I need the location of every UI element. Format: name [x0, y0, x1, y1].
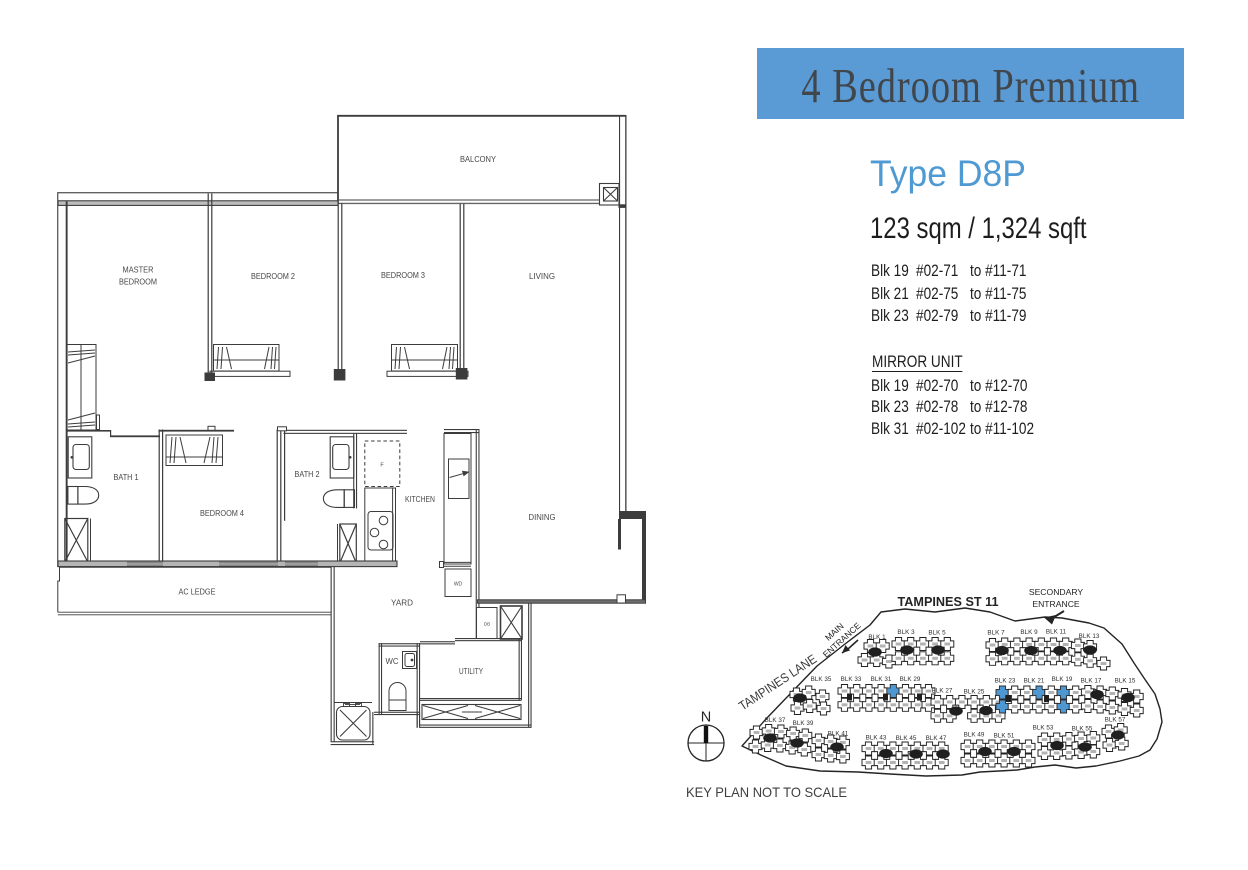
svg-text:AC LEDGE: AC LEDGE: [179, 587, 216, 597]
svg-text:BLK 51: BLK 51: [994, 733, 1015, 740]
svg-text:KEY PLAN NOT TO SCALE: KEY PLAN NOT TO SCALE: [686, 785, 847, 800]
svg-text:BALCONY: BALCONY: [460, 154, 496, 164]
svg-text:YARD: YARD: [391, 598, 413, 608]
svg-text:BLK 41: BLK 41: [828, 731, 849, 738]
svg-text:BATH 1: BATH 1: [114, 472, 139, 482]
svg-text:BLK 11: BLK 11: [1046, 629, 1067, 636]
svg-text:UTILITY: UTILITY: [459, 666, 483, 676]
svg-text:BLK 3: BLK 3: [897, 629, 915, 636]
svg-text:BLK 25: BLK 25: [964, 689, 985, 696]
svg-text:BLK 17: BLK 17: [1081, 678, 1102, 685]
svg-text:BLK 33: BLK 33: [841, 676, 862, 683]
svg-text:BLK 13: BLK 13: [1079, 633, 1100, 640]
svg-text:BLK 19: BLK 19: [1052, 676, 1073, 683]
svg-text:BLK 43: BLK 43: [866, 735, 887, 742]
svg-text:DB: DB: [484, 622, 490, 627]
svg-text:BLK 29: BLK 29: [900, 676, 921, 683]
svg-text:BEDROOM: BEDROOM: [119, 277, 157, 287]
svg-text:TAMPINES ST 11: TAMPINES ST 11: [898, 594, 999, 609]
svg-text:BLK 49: BLK 49: [964, 732, 985, 739]
svg-text:WD: WD: [454, 582, 463, 588]
svg-text:BLK 57: BLK 57: [1105, 717, 1126, 724]
svg-text:LIVING: LIVING: [529, 271, 555, 281]
svg-text:BLK 45: BLK 45: [896, 735, 917, 742]
svg-text:BLK 1: BLK 1: [868, 634, 886, 641]
svg-text:F: F: [380, 463, 384, 469]
svg-text:BLK 37: BLK 37: [765, 717, 786, 724]
svg-text:BLK 53: BLK 53: [1033, 725, 1054, 732]
svg-text:MASTER: MASTER: [123, 265, 154, 275]
svg-text:BLK 55: BLK 55: [1072, 726, 1093, 733]
svg-text:SECONDARY: SECONDARY: [1029, 587, 1084, 597]
svg-text:BLK 39: BLK 39: [793, 720, 814, 727]
svg-text:BLK 21: BLK 21: [1024, 678, 1045, 685]
svg-text:WC: WC: [386, 656, 399, 666]
svg-text:BEDROOM 4: BEDROOM 4: [200, 508, 244, 518]
svg-text:KITCHEN: KITCHEN: [405, 494, 435, 504]
svg-text:N: N: [701, 710, 711, 726]
svg-text:BLK 27: BLK 27: [932, 688, 953, 695]
svg-text:BEDROOM 2: BEDROOM 2: [251, 271, 295, 281]
svg-text:DINING: DINING: [529, 512, 556, 522]
svg-text:BLK 31: BLK 31: [871, 676, 892, 683]
svg-text:BLK 7: BLK 7: [987, 630, 1005, 637]
svg-text:BLK 47: BLK 47: [926, 735, 947, 742]
svg-text:BLK 9: BLK 9: [1020, 629, 1038, 636]
svg-text:BLK 5: BLK 5: [928, 630, 946, 637]
svg-text:ENTRANCE: ENTRANCE: [1032, 599, 1080, 609]
svg-text:BLK 15: BLK 15: [1115, 678, 1136, 685]
svg-text:BLK 35: BLK 35: [811, 676, 832, 683]
svg-text:BEDROOM 3: BEDROOM 3: [381, 270, 425, 280]
svg-text:BATH 2: BATH 2: [295, 469, 320, 479]
svg-text:BLK 23: BLK 23: [995, 678, 1016, 685]
